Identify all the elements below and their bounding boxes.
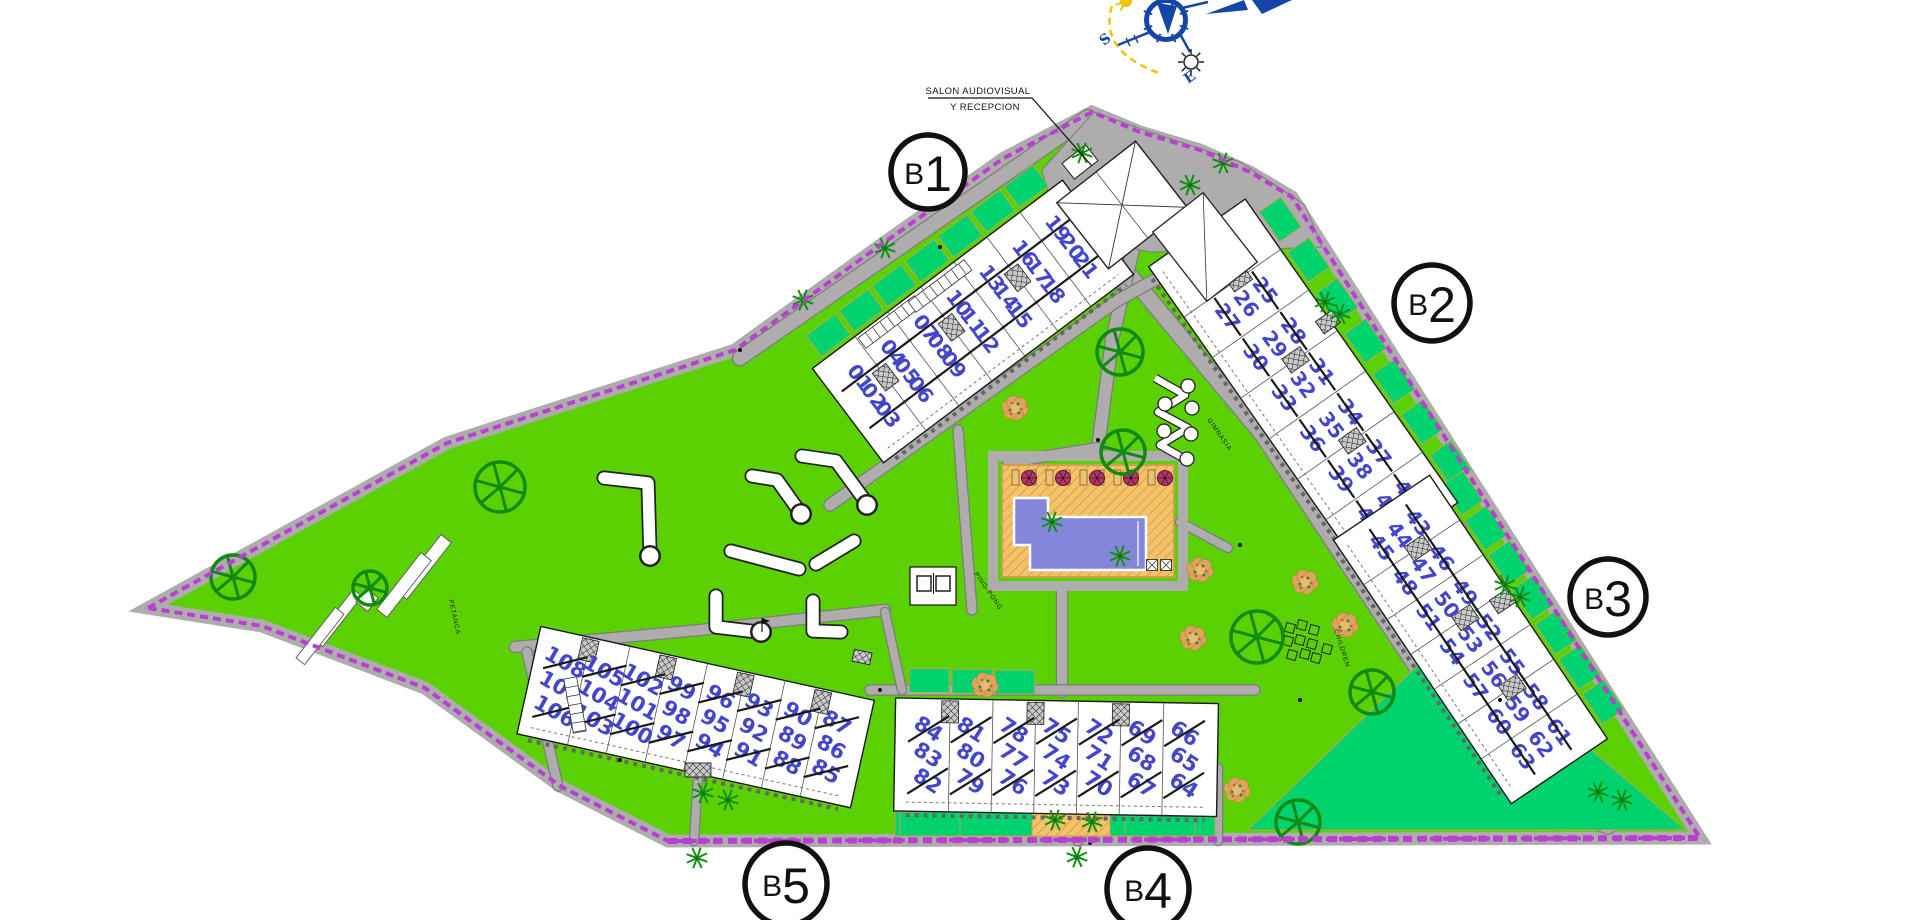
- site-plan-canvas: 0102030405060708091011121314151617181920…: [0, 0, 1920, 920]
- sun-icon: [1116, 0, 1132, 11]
- badge-B5: B5: [745, 843, 827, 920]
- marker-icon: [1498, 698, 1502, 702]
- sun-lounger: [1046, 470, 1053, 485]
- deck-box-icon: [1161, 560, 1172, 571]
- compass-spoke: [1180, 34, 1190, 52]
- palm-tree-icon: [687, 848, 708, 869]
- badge-B2: B2: [1394, 265, 1470, 341]
- parasol-icon: [1022, 471, 1037, 486]
- sun-lounger: [1080, 470, 1087, 485]
- reception-callout-line2: Y RECEPCION: [950, 102, 1020, 113]
- parasol-icon: [1158, 471, 1173, 486]
- compass-rose: S E: [1097, 0, 1292, 87]
- boundary-line-south: [668, 838, 1700, 841]
- north-arrow-icon: [1206, 0, 1248, 14]
- marker-icon: [1238, 543, 1242, 547]
- marker-icon: [738, 348, 742, 352]
- parasol-icon: [1056, 471, 1071, 486]
- compass-spoke: [1182, 2, 1208, 8]
- badge-B4: B4: [1107, 848, 1189, 920]
- utility-box: [685, 763, 711, 777]
- parasol-icon: [1090, 471, 1105, 486]
- road: [694, 776, 698, 841]
- reception-callout-line1: SALON AUDIOVISUAL: [925, 86, 1030, 97]
- deck-box-icon: [1147, 560, 1158, 571]
- garden-plot: [995, 670, 1035, 694]
- marker-icon: [938, 245, 942, 249]
- garden-plot: [909, 669, 949, 693]
- ping-pong-table: [910, 567, 956, 605]
- badge-B1: B1: [891, 135, 965, 209]
- marker-icon: [618, 758, 622, 762]
- north-arrow-icon: [1252, 0, 1292, 14]
- compass-spoke: [1118, 32, 1150, 45]
- palm-tree-icon: [1067, 847, 1088, 868]
- marker-icon: [1298, 698, 1302, 702]
- marker-icon: [878, 688, 882, 692]
- building-B4: 8483828180797877767574737271706968676665…: [894, 698, 1219, 820]
- sun-lounger: [1012, 470, 1019, 485]
- sun-icon: [1178, 49, 1204, 75]
- sun-lounger: [1148, 470, 1155, 485]
- badge-B3: B3: [1570, 559, 1646, 635]
- compass-east-letter: E: [1181, 68, 1199, 87]
- marker-icon: [1096, 438, 1100, 442]
